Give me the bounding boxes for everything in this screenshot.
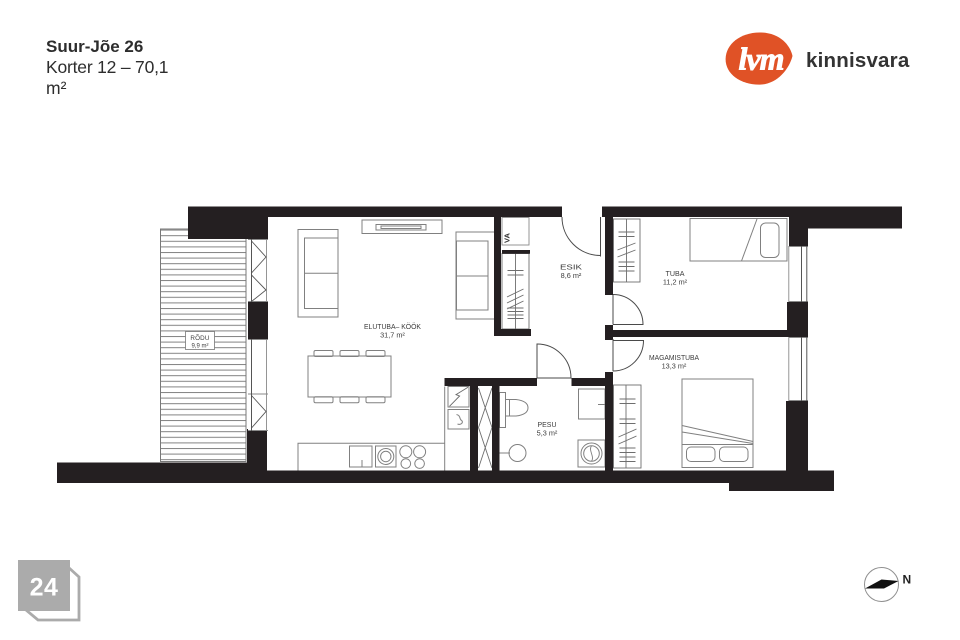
svg-text:VA: VA xyxy=(503,233,512,243)
svg-text:13,3 m²: 13,3 m² xyxy=(662,362,687,371)
svg-text:N: N xyxy=(903,573,912,587)
svg-text:9,9 m²: 9,9 m² xyxy=(191,344,208,350)
svg-text:5,3 m²: 5,3 m² xyxy=(537,429,558,438)
svg-text:m²: m² xyxy=(46,78,67,98)
svg-text:8,6 m²: 8,6 m² xyxy=(561,271,582,280)
svg-text:lvm: lvm xyxy=(739,41,784,77)
svg-text:Korter 12 – 70,1: Korter 12 – 70,1 xyxy=(46,57,168,77)
svg-text:RÕDU: RÕDU xyxy=(190,333,210,342)
svg-text:11,2 m²: 11,2 m² xyxy=(663,278,688,287)
svg-text:kinnisvara: kinnisvara xyxy=(806,49,910,72)
svg-text:24: 24 xyxy=(30,574,59,602)
svg-text:Suur-Jõe 26: Suur-Jõe 26 xyxy=(46,37,143,56)
svg-text:31,7 m²: 31,7 m² xyxy=(380,331,405,340)
